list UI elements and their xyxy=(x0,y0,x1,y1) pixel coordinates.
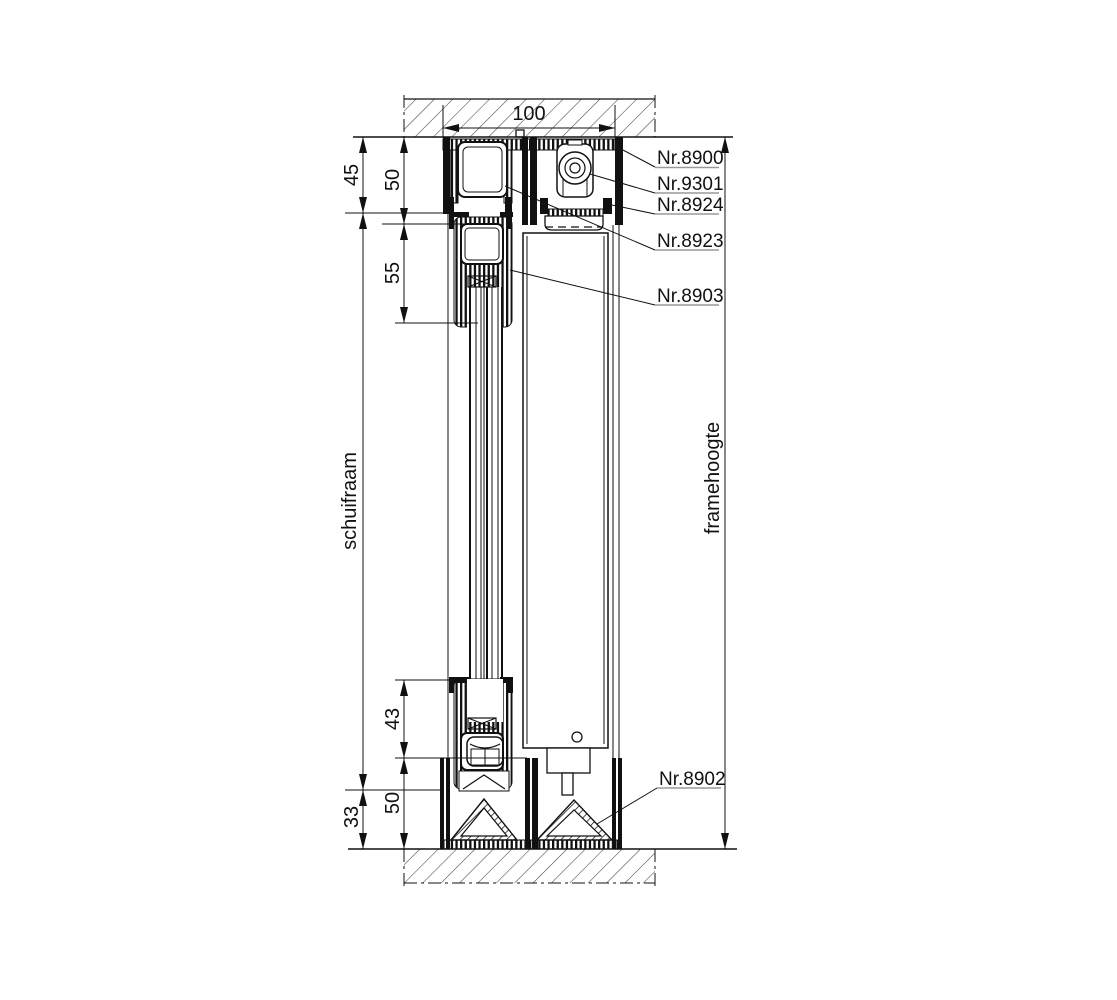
sash-top-bead-left xyxy=(453,212,469,217)
sill-right-bar-2 xyxy=(618,758,622,849)
guide-tab-right xyxy=(505,197,512,212)
chamber-bracket-right xyxy=(603,198,612,214)
technical-drawing-canvas: 100 45 50 55 schuifraam 43 50 33 frameho… xyxy=(0,0,1117,1000)
brush-seal xyxy=(545,216,603,230)
sash-bottom-glass-slot xyxy=(467,679,503,722)
panel-body xyxy=(523,233,608,748)
sash-top-bead-right xyxy=(500,212,513,217)
wheel-groove-box xyxy=(459,771,509,791)
chamber-base-band xyxy=(548,209,603,216)
leader-nr8902 xyxy=(597,788,657,824)
floor-hatch xyxy=(404,849,655,883)
head-divider-bar-2 xyxy=(530,137,537,225)
top-roller-assembly xyxy=(557,140,593,197)
guide-tab-left xyxy=(448,197,454,212)
sill-divider-bar-1 xyxy=(525,758,530,849)
part-label-nr8900: Nr.8900 xyxy=(657,148,724,169)
guide-wall-left xyxy=(450,150,458,203)
part-label-nr9301: Nr.9301 xyxy=(657,174,724,195)
anchor-tab xyxy=(516,130,524,137)
sash-guide-channel xyxy=(458,142,507,197)
roller-wheel-outer xyxy=(559,152,591,184)
dim-text-45: 45 xyxy=(341,164,363,186)
panel-drain-hole xyxy=(572,732,582,742)
glass-pane-lines xyxy=(470,287,502,722)
dim-text-50-bottom: 50 xyxy=(382,792,404,814)
panel-bottom-bracket xyxy=(547,748,590,773)
part-label-nr8902: Nr.8902 xyxy=(659,769,726,790)
head-right-bar xyxy=(615,137,623,225)
roller-bracket-notch xyxy=(568,140,582,145)
dim-text-55: 55 xyxy=(382,262,404,284)
dim-text-43: 43 xyxy=(382,708,404,730)
dim-text-50-top: 50 xyxy=(382,169,404,191)
sill-left-bar-2 xyxy=(446,758,450,849)
part-label-nr8903: Nr.8903 xyxy=(657,286,724,307)
sliding-sash xyxy=(449,212,513,791)
sill-right-bar-1 xyxy=(612,758,616,849)
chamber-bracket-left xyxy=(540,198,548,214)
part-label-nr8923: Nr.8923 xyxy=(657,231,724,252)
window-section-drawing: 100 45 50 55 schuifraam 43 50 33 frameho… xyxy=(0,0,1117,1000)
head-divider-bar-1 xyxy=(522,137,528,225)
sill-base-band xyxy=(444,840,618,849)
dim-text-33: 33 xyxy=(341,806,363,828)
frame-head-profile xyxy=(443,130,623,230)
panel-bottom-foot xyxy=(562,773,573,795)
leader-nr8900 xyxy=(623,150,655,167)
floor-section-bottom xyxy=(404,849,655,886)
sill-divider-bar-2 xyxy=(532,758,538,849)
dim-text-100: 100 xyxy=(512,103,545,125)
sill-left-bar-1 xyxy=(440,758,444,849)
sash-top-channel xyxy=(461,224,503,264)
dim-text-schuifraam: schuifraam xyxy=(339,452,361,550)
part-label-nr8924: Nr.8924 xyxy=(657,195,724,216)
dim-text-framehoogte: framehoogte xyxy=(702,422,724,534)
